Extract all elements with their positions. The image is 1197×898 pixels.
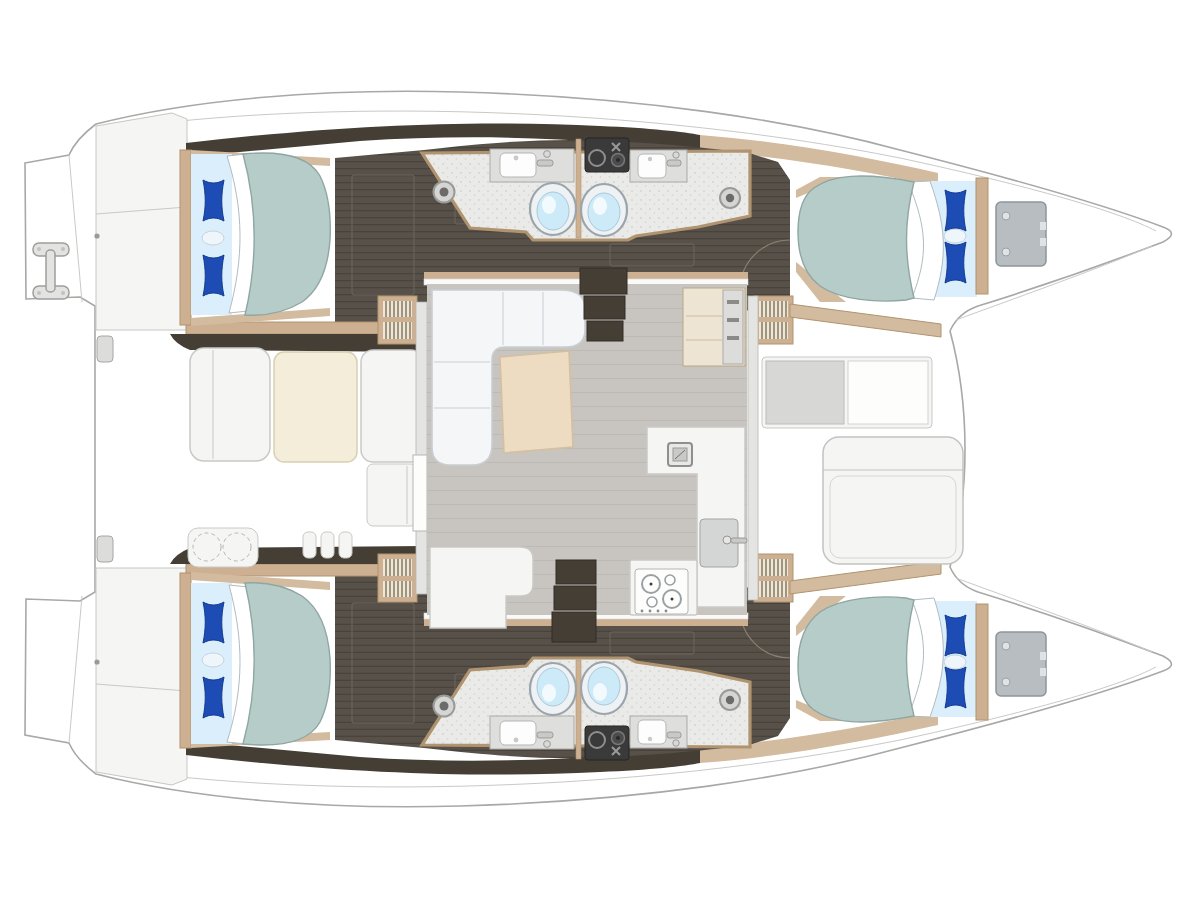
foredeck-hatch	[996, 202, 1046, 266]
bathroom-sink	[490, 149, 574, 182]
aft-cockpit	[188, 348, 423, 567]
headboard	[976, 178, 988, 294]
cockpit-table	[274, 352, 357, 462]
pillow	[203, 255, 224, 296]
toilet	[581, 184, 627, 236]
forward-lounge-seat	[823, 437, 963, 564]
forward-cockpit-step	[790, 304, 941, 337]
bed-frame	[180, 150, 191, 325]
floor-plan-page	[0, 0, 1197, 898]
heads-divider-wall	[576, 139, 581, 238]
hull-heads	[422, 138, 750, 240]
shower-drain	[720, 188, 740, 208]
boarding-ladder	[33, 243, 69, 299]
pillow	[203, 180, 224, 221]
cockpit-module	[367, 464, 417, 526]
technical-compartment	[585, 138, 629, 172]
sliding-door	[413, 455, 427, 531]
stove	[635, 569, 688, 614]
aft-cabin-bed	[180, 150, 330, 326]
salon-entry-steps-starboard	[552, 560, 596, 642]
salon	[413, 268, 747, 642]
transom-platform	[94, 113, 187, 362]
salon-aft-wall	[416, 302, 427, 594]
pillow	[945, 190, 966, 231]
pillow-gap	[202, 231, 224, 245]
sunken-footwell	[762, 357, 932, 428]
salon-forward-wall	[748, 296, 758, 600]
pillow	[945, 242, 966, 283]
counter-hatch	[668, 443, 692, 466]
cockpit-bench	[190, 348, 270, 461]
companionway-stairs	[378, 296, 417, 344]
salon-entry-steps-port	[580, 268, 627, 341]
cockpit-steps	[303, 532, 352, 558]
fridge-cabinet	[683, 288, 745, 366]
mattress	[798, 176, 914, 301]
toilet	[530, 183, 576, 235]
helm-seat	[188, 528, 258, 567]
pillow-gap	[944, 229, 966, 243]
catamaran-floor-plan	[0, 0, 1197, 898]
companionway-stairs	[754, 296, 793, 344]
bathroom-sink	[630, 150, 687, 182]
shower-drain	[434, 182, 455, 203]
mattress	[243, 153, 330, 315]
forward-cabin-bed	[796, 176, 988, 302]
salon-table	[500, 351, 573, 453]
cockpit-bench	[361, 350, 423, 462]
